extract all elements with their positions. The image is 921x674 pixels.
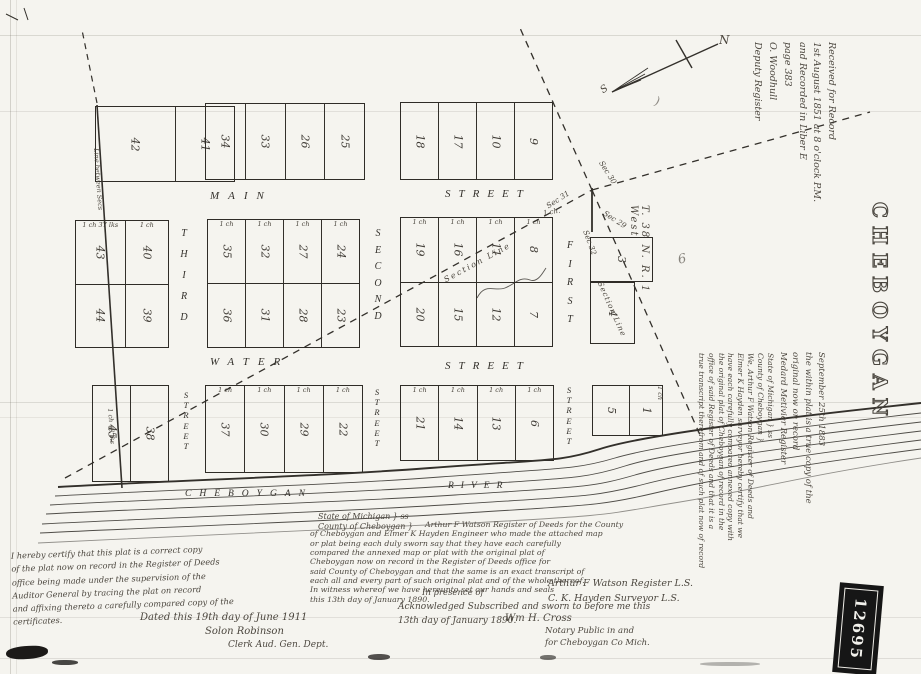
stray-mark: ) [653,94,661,109]
lot-number: 18 [413,134,426,148]
scan-line-artifact [0,658,921,659]
lot-cell: 15 [439,283,477,347]
lot-number: 13 [490,416,503,430]
county-stamp-title: CHEBOYGAN [862,202,892,392]
lot-number: 24 [334,245,347,259]
lot-number: 10 [489,134,502,148]
record-number-stamp: 12695 [832,582,884,674]
lot-number: 38 [143,427,156,441]
plat-block: 34332625 [205,103,365,180]
plat-block: 51 [592,385,663,436]
record-number-stamp-border: 12695 [838,588,879,671]
lot-number: 33 [259,135,272,149]
lot-number: 3 [615,256,628,263]
section-30-label: Sec 30 [597,159,618,186]
lot-number: 22 [336,422,349,436]
plat-block: 1817109 [400,102,553,180]
river-word-label: RIVER [448,481,509,491]
lot-cell: 1 ch21 [401,386,439,460]
compass-north-label: N [719,33,730,47]
plat-block: 1 ch351 ch321 ch271 ch24 36312823 [207,219,360,348]
chain-measure-label: 1 ch [412,218,426,226]
lot-cell: 1 ch19 [401,218,439,282]
river-name-label: CHEBOYGAN [185,489,313,499]
in-presence-of-label: In presence of [422,588,484,598]
lot-number: 9 [527,138,540,145]
lot-cell: 10 [477,103,515,179]
first-street-label: F I R S T [563,237,577,330]
chain-measure-label: 1 ch [488,218,502,226]
notary-signature: Wm H. Cross [505,613,572,624]
lot-cell: 1 ch 37 lks43 [76,221,126,284]
lot-cell: 23 [322,284,359,347]
lot-number: 8 [527,246,540,253]
block-tier: 36312823 [208,284,359,347]
lot-number: 7 [527,311,540,318]
water-street-label: WATER [210,356,289,368]
lot-number: 40 [140,245,153,259]
lot-cell: 1 ch27 [284,220,322,283]
block-tier: 1 ch191 ch161 ch111 ch8 [401,218,552,283]
lot-cell: 5 [593,386,630,435]
ink-smudge [368,654,390,660]
lot-cell: 7 [515,283,552,347]
lot-number: 32 [258,245,271,259]
stray-mark: 6 [677,251,688,267]
lot-cell: 1 ch37 [206,386,245,472]
lot-number: 37 [219,422,232,436]
lot-number: 14 [451,416,464,430]
second-street-label: S E C O N D [371,226,385,325]
compass-south-label: S [598,83,610,96]
township-range-label: T. 38 N. R. 1 West [628,205,650,305]
lot-number: 25 [338,135,351,149]
lot-cell: 1 ch32 [246,220,284,283]
chain-measure-label: 1 ch [333,220,347,228]
lot-number: 43 [94,245,107,259]
block-tier: 1 ch351 ch321 ch271 ch24 [208,220,359,284]
dated-line: Dated this 19th day of June 1911 [140,612,307,623]
chain-measure-label: 1 ch [413,386,427,394]
lot-number: 15 [451,307,464,321]
ink-smudge [52,660,78,665]
lot-cell: 42 [96,107,176,181]
lot-cell: 1 ch24 [322,220,359,283]
lot-number: 44 [94,309,107,323]
watson-certificate-body: Arthur F Watson Register of Deeds for th… [310,520,885,604]
first-street-word: S T R E E T [562,385,576,446]
watson-signature: Arthur F Watson Register L.S. [548,578,693,589]
lot-number: 16 [451,243,464,257]
plat-block: 1 ch371 ch301 ch291 ch22 [205,385,363,473]
lot-number: 28 [296,309,309,323]
lot-number: 12 [489,307,502,321]
lot-number: 29 [297,422,310,436]
lot-number: 34 [219,135,232,149]
chain-measure-label: 1 ch [257,386,271,394]
chain-measure-label: 1 ch [295,220,309,228]
block-tier: 1 ch 37 lks431 ch40 [76,221,168,285]
clerk-title: Clerk Aud. Gen. Dept. [228,640,328,650]
lot-number: 19 [413,243,426,257]
lot-number: 21 [413,416,426,430]
lot-cell: 1 ch14 [439,386,477,460]
main-street-word: STREET [445,188,531,200]
lot-cell: 1 ch8 [515,218,552,282]
section-29-label: Sec 29 [602,209,628,231]
lot-cell: 1 ch29 [285,386,324,472]
lot-number: 17 [451,134,464,148]
plat-block: 1 ch 37 lks431 ch40 4439 [75,220,169,348]
lot-number: 5 [605,407,618,414]
notary-title: Notary Public in and for Cheboygan Co Mi… [545,626,650,650]
chain-measure-label: 1 ch [489,386,503,394]
lot-cell: 1 ch40 [126,221,168,284]
lot-cell: 28 [284,284,322,347]
received-for-record-note: Received for Record 1st August 1851 at 8… [750,42,838,252]
third-street-label: T H I R D [177,223,191,328]
chain-measure-label: 1 ch [218,386,232,394]
chain-measure-label: 1 ch [297,386,311,394]
lot-number: 31 [258,309,271,323]
lot-cell: 39 [126,285,168,348]
block-tier: 4439 [76,285,168,348]
lot-number: 30 [258,422,271,436]
lot-number: 39 [140,309,153,323]
chain-measure-label: 1 ch [450,218,464,226]
ink-smudge [540,655,556,660]
lot-number: 35 [220,245,233,259]
chain-measure-label: 1 ch [656,386,664,408]
lot-cell: 1 ch6 [516,386,553,460]
lot-number: 6 [528,420,541,427]
block-tier: 2015127 [401,283,552,347]
chain-measure-label: 1 ch [451,386,465,394]
lot-cell: 34 [206,104,246,179]
lot-number: 26 [298,135,311,149]
third-street-word: S T R E E T [179,390,193,451]
lot-cell: 44 [76,285,126,348]
lot-cell: 1 ch13 [478,386,516,460]
plat-block: 1 ch191 ch161 ch111 ch8 2015127 [400,217,553,347]
chain-measure-label: 1 ch [140,221,154,229]
corner-chain-label: 1 ch. [542,207,560,218]
lot-cell: 33 [246,104,286,179]
scan-line-artifact [0,35,921,36]
lot-cell: 25 [325,104,364,179]
lot-number: 36 [220,309,233,323]
chain-measure-label: 1 ch [527,386,541,394]
plat-block: 1 ch211 ch141 ch131 ch6 [400,385,554,461]
lot-number: 20 [413,307,426,321]
lot-cell: 12 [477,283,515,347]
chain-measure-label: 1 ch [219,220,233,228]
water-street-word: STREET [445,360,531,372]
lot-number: 42 [129,137,142,151]
plat-map-scan: 4241 34332625 1817109 1 ch 37 lks431 ch4… [0,0,921,674]
lot-cell: 38 [131,386,168,481]
lot-cell: 17 [439,103,477,179]
lot-cell: 31 [246,284,284,347]
plat-block: 45-38 [92,385,169,482]
lot-number: 27 [296,245,309,259]
lot-cell: 18 [401,103,439,179]
second-street-word: S T R E E T [370,387,384,448]
lot-cell: 36 [208,284,246,347]
lot-cell: 20 [401,283,439,347]
lot-cell: 1 ch22 [324,386,362,472]
lot-cell: 26 [286,104,326,179]
chain-measure-label: 1 ch [336,386,350,394]
chain-measure-label: 1 ch [526,218,540,226]
lot-cell: 1 ch30 [245,386,284,472]
chain-measure-label: 1 ch [257,220,271,228]
main-street-label: MAIN [210,190,273,202]
lot-number: 23 [334,309,347,323]
clerk-signature: Solon Robinson [205,626,284,637]
ink-smudge [700,662,760,666]
lot-number: 1 [640,407,653,414]
lot-cell: 9 [515,103,552,179]
record-number: 12695 [846,597,869,661]
lot-cell: 1 ch35 [208,220,246,283]
